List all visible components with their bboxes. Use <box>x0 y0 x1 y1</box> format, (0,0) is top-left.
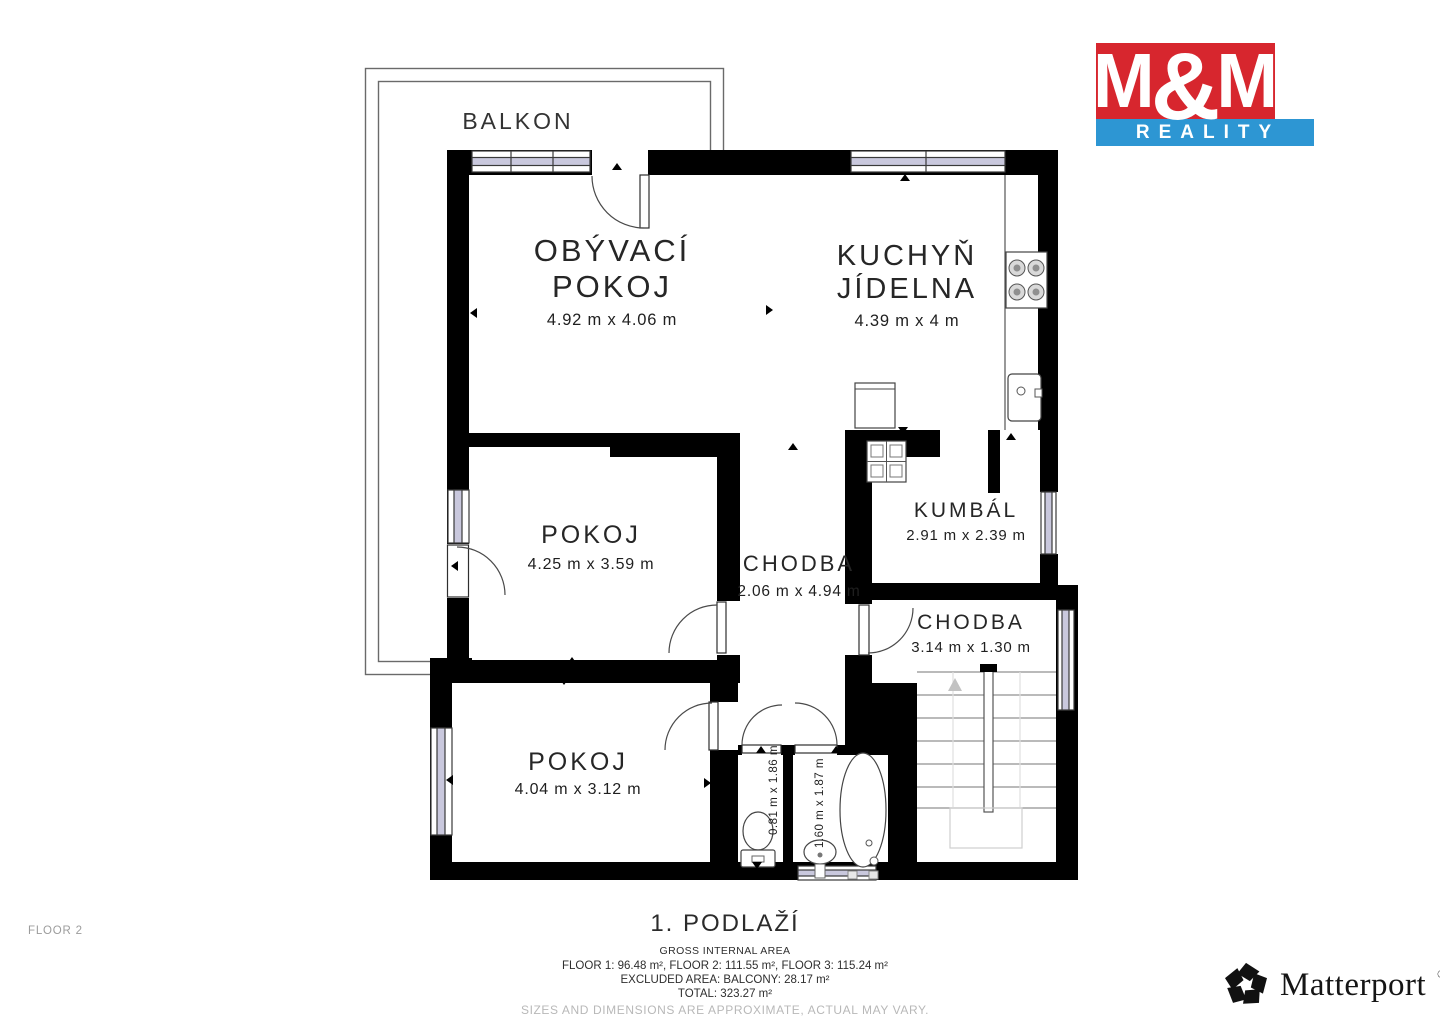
mm-logo-letter-m-left: M <box>1093 41 1155 120</box>
matterport-pinwheel-icon <box>1222 961 1270 1009</box>
room-name: JÍDELNA <box>837 273 977 306</box>
total-area-line: TOTAL: 323.27 m² <box>521 988 929 1000</box>
stove-icon <box>1006 252 1047 308</box>
floorplan-page: BALKON OBÝVACÍ POKOJ 4.92 m x 4.06 m KUC… <box>0 0 1440 1018</box>
room-name: KUCHYŇ <box>837 240 977 273</box>
floor-tag: FLOOR 2 <box>28 925 83 937</box>
room-label-koupelna-dimensions: 1.60 m x 1.87 m <box>814 758 826 848</box>
mm-logo-ampersand: & <box>1151 49 1220 125</box>
room-label-kumbal: KUMBÁL 2.91 m x 2.39 m <box>906 499 1026 544</box>
room-label-chodba-mala: CHODBA 3.14 m x 1.30 m <box>911 611 1031 656</box>
room-dimensions: 4.39 m x 4 m <box>837 312 977 331</box>
matterport-wordmark: Matterport <box>1280 967 1426 1004</box>
room-label-chodba-hlavni: CHODBA 2.06 m x 4.94 m <box>737 551 860 601</box>
room-dimensions: 4.25 m x 3.59 m <box>528 556 655 574</box>
room-label-obyvaci-pokoj: OBÝVACÍ POKOJ 4.92 m x 4.06 m <box>534 233 691 330</box>
fridge-icon <box>855 383 895 428</box>
room-dimensions: 4.92 m x 4.06 m <box>534 311 691 330</box>
gross-area-label: GROSS INTERNAL AREA <box>521 945 929 957</box>
mm-logo-red-box: M & M <box>1096 43 1275 119</box>
room-name: CHODBA <box>911 611 1031 635</box>
boiler-icon <box>867 441 906 482</box>
mm-logo-letter-m-right: M <box>1216 41 1278 120</box>
stairs-rail <box>984 669 993 812</box>
room-name: POKOJ <box>528 521 655 550</box>
balkon-label: BALKON <box>462 108 573 135</box>
room-dimensions: 3.14 m x 1.30 m <box>911 639 1031 656</box>
floorplan-graphic <box>0 0 1440 1018</box>
room-label-pokoj-stred: POKOJ 4.25 m x 3.59 m <box>528 521 655 574</box>
room-name: KUMBÁL <box>906 499 1026 523</box>
room-name: CHODBA <box>737 551 860 577</box>
excluded-area-line: EXCLUDED AREA: BALCONY: 28.17 m² <box>521 974 929 986</box>
room-label-pokoj-dolni: POKOJ 4.04 m x 3.12 m <box>515 748 642 799</box>
kitchen-sink-icon <box>1008 374 1042 421</box>
floor-title: 1. PODLAŽÍ <box>650 910 799 938</box>
room-dimensions: 2.06 m x 4.94 m <box>737 583 860 601</box>
floors-areas-line: FLOOR 1: 96.48 m², FLOOR 2: 111.55 m², F… <box>521 960 929 972</box>
room-dimensions: 2.91 m x 2.39 m <box>906 527 1026 544</box>
room-name: POKOJ <box>515 748 642 777</box>
room-dimensions: 4.04 m x 3.12 m <box>515 781 642 799</box>
room-name: OBÝVACÍ <box>534 233 691 269</box>
room-label-kuchyn-jidelna: KUCHYŇ JÍDELNA 4.39 m x 4 m <box>837 240 977 331</box>
room-label-wc-dimensions: 0.81 m x 1.86 m <box>768 745 780 835</box>
room-name: POKOJ <box>534 269 691 305</box>
mm-reality-logo: M & M REALITY <box>1096 43 1314 146</box>
disclaimer-text: SIZES AND DIMENSIONS ARE APPROXIMATE, AC… <box>521 1003 929 1017</box>
area-summary: GROSS INTERNAL AREA FLOOR 1: 96.48 m², F… <box>521 945 929 1017</box>
matterport-logo: Matterport ® <box>1222 961 1440 1009</box>
